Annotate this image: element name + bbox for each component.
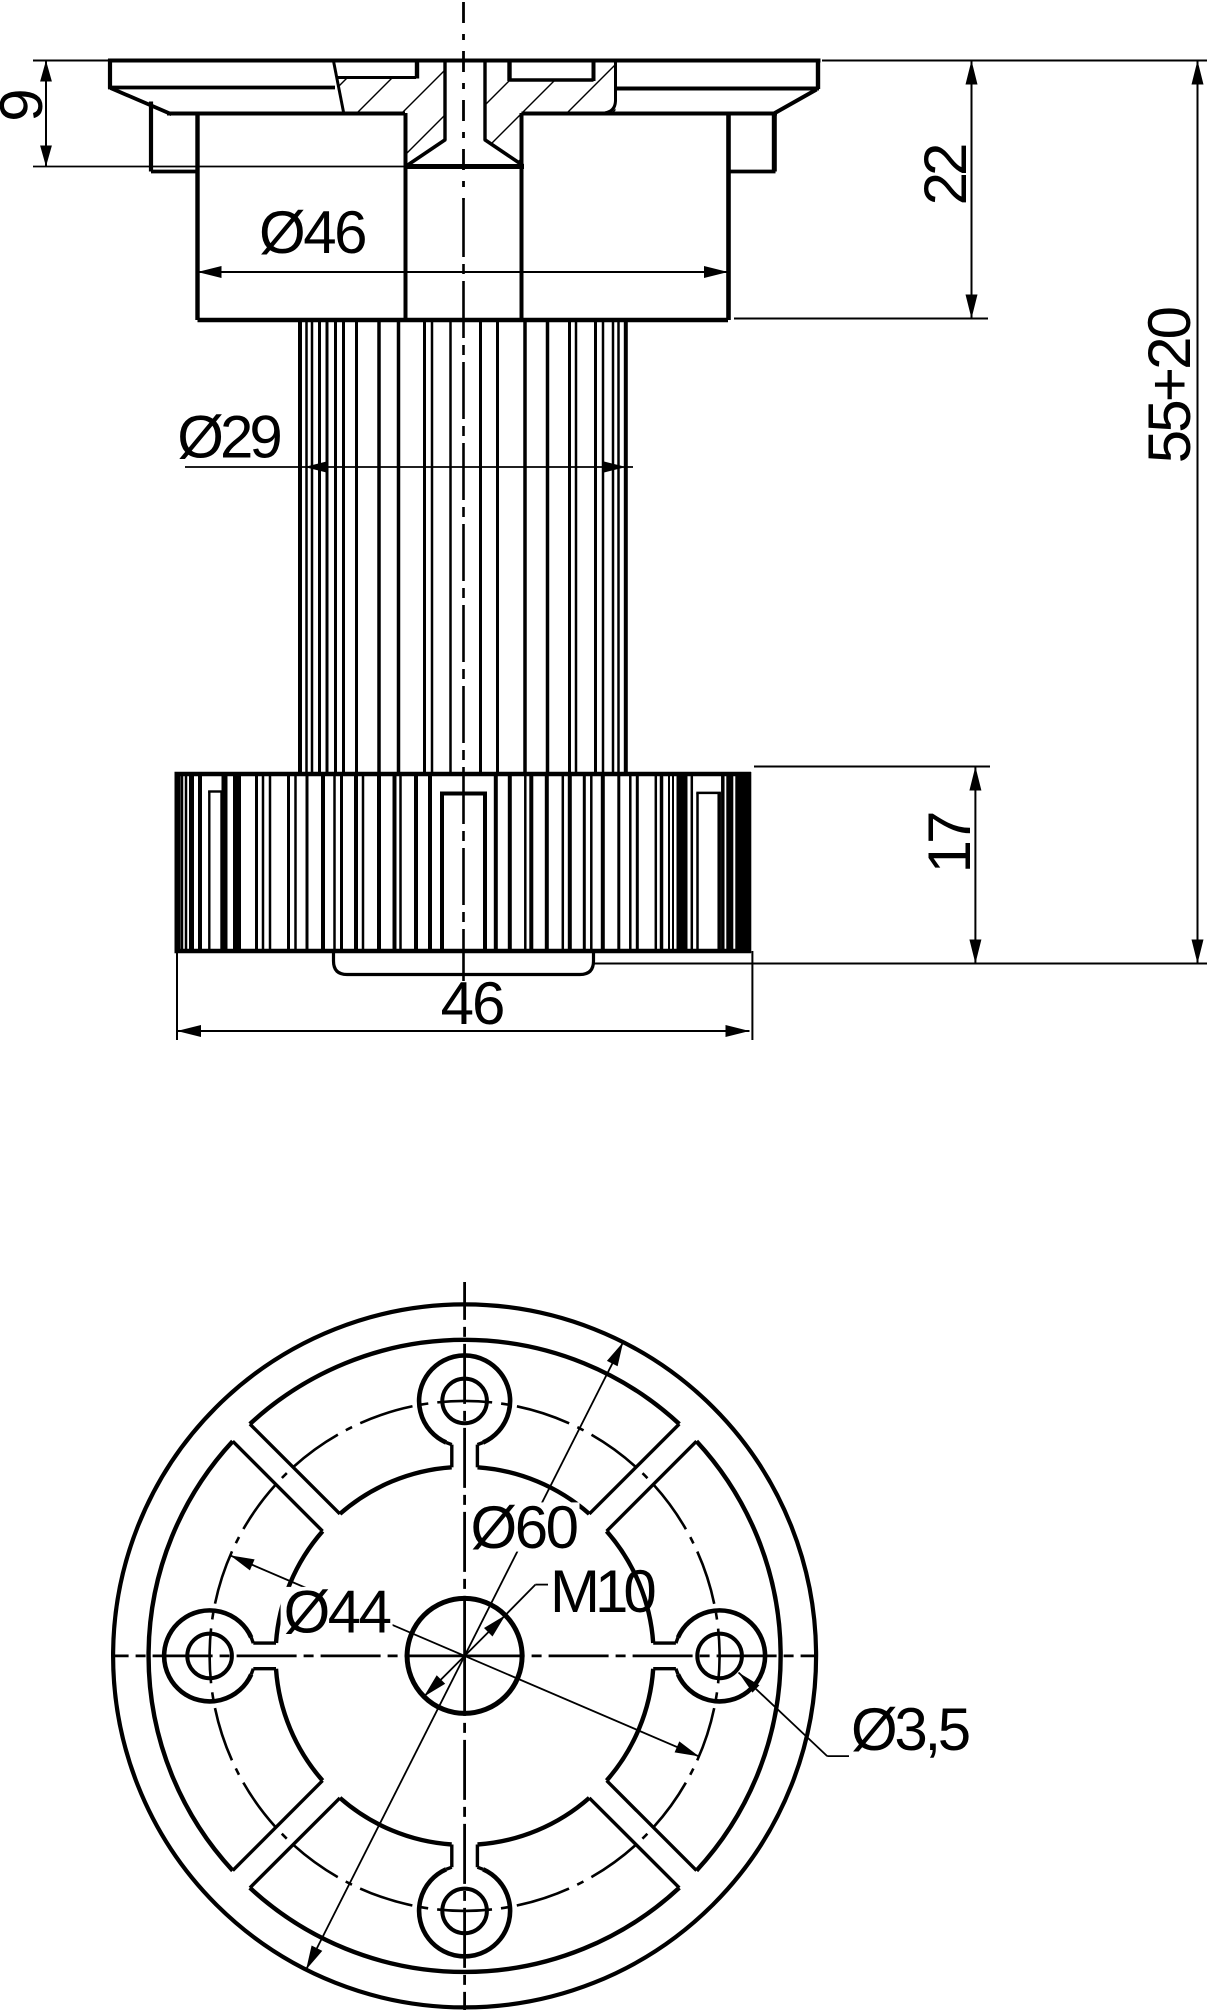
svg-text:Ø44: Ø44 bbox=[284, 1579, 391, 1646]
svg-text:55+20: 55+20 bbox=[1136, 307, 1203, 463]
svg-text:9: 9 bbox=[0, 88, 55, 121]
svg-text:M10: M10 bbox=[550, 1558, 655, 1625]
svg-text:17: 17 bbox=[916, 813, 983, 873]
svg-text:Ø3,5: Ø3,5 bbox=[851, 1696, 969, 1763]
svg-text:Ø29: Ø29 bbox=[177, 404, 280, 471]
svg-text:22: 22 bbox=[912, 145, 979, 205]
svg-text:Ø60: Ø60 bbox=[471, 1494, 578, 1561]
svg-text:46: 46 bbox=[441, 970, 504, 1037]
svg-text:Ø46: Ø46 bbox=[259, 199, 365, 266]
